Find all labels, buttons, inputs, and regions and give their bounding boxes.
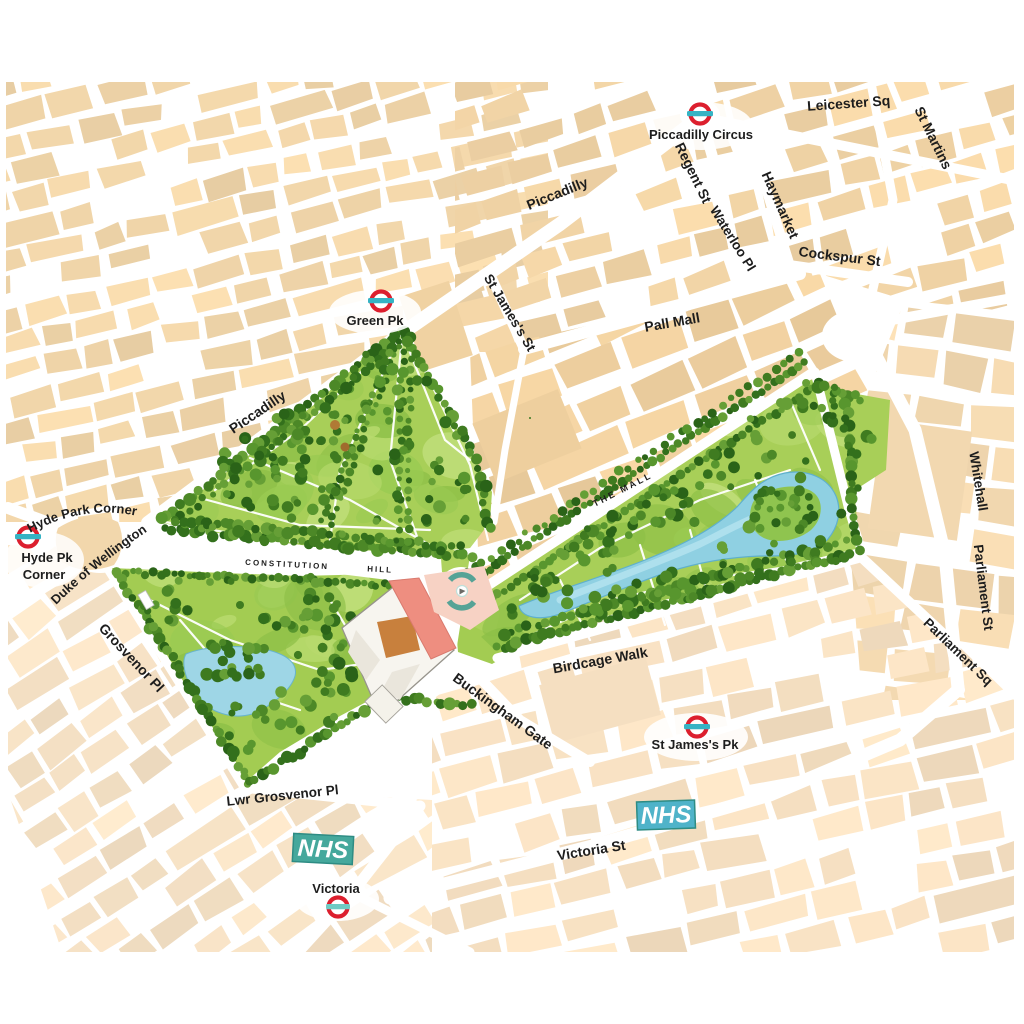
- svg-text:St James's Pk: St James's Pk: [652, 737, 740, 752]
- svg-text:Green Pk: Green Pk: [346, 313, 404, 328]
- svg-text:Corner: Corner: [23, 567, 66, 582]
- svg-text:Hyde Pk: Hyde Pk: [21, 550, 73, 565]
- svg-text:NHS: NHS: [297, 835, 349, 865]
- svg-text:Piccadilly Circus: Piccadilly Circus: [649, 127, 753, 142]
- svg-text:NHS: NHS: [640, 801, 692, 830]
- svg-text:Victoria: Victoria: [312, 881, 360, 896]
- svg-text:HILL: HILL: [367, 564, 393, 574]
